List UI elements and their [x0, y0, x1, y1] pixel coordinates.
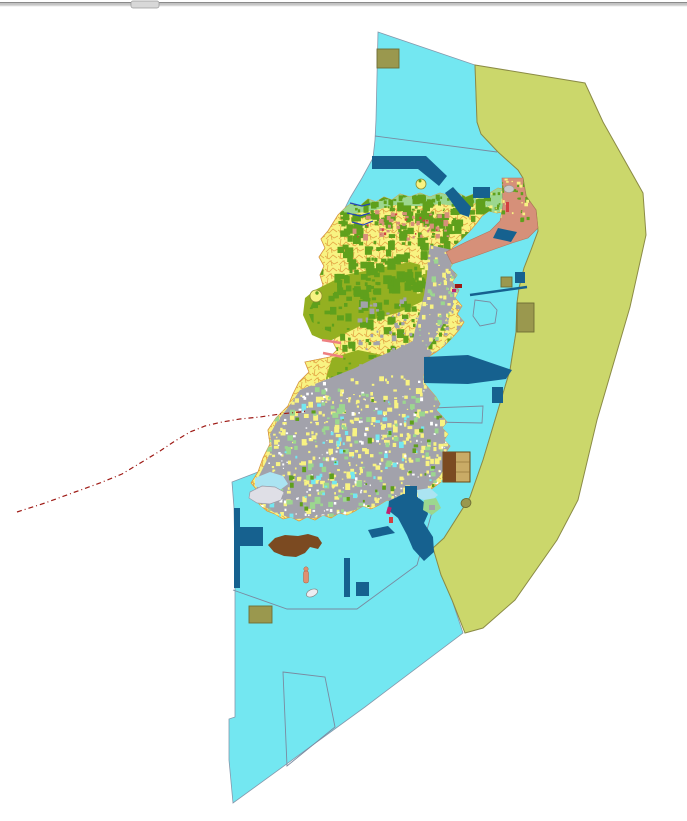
building-block-se [443, 452, 470, 482]
salmon-zone-gray-plot [504, 186, 514, 193]
map-canvas[interactable] [0, 0, 687, 821]
window-bar-tab[interactable] [131, 1, 159, 8]
blue-plot-east-small [492, 387, 503, 403]
khaki-plot-east-small [501, 277, 512, 287]
khaki-plot-north [377, 49, 399, 68]
islet-se-gray [429, 505, 435, 510]
blue-plot-north [473, 187, 490, 198]
islet-circle-north-dot [419, 180, 422, 183]
islet-circle-west-dot [315, 291, 318, 294]
map-window [0, 0, 687, 821]
blue-plot-south [356, 582, 369, 596]
blue-plot-east [515, 272, 525, 283]
pier-bar-south [344, 558, 350, 597]
khaki-plot-east [517, 303, 534, 332]
red-road-ne [506, 202, 509, 212]
khaki-plot-south [249, 606, 272, 623]
figure-salmon-south [304, 567, 309, 583]
